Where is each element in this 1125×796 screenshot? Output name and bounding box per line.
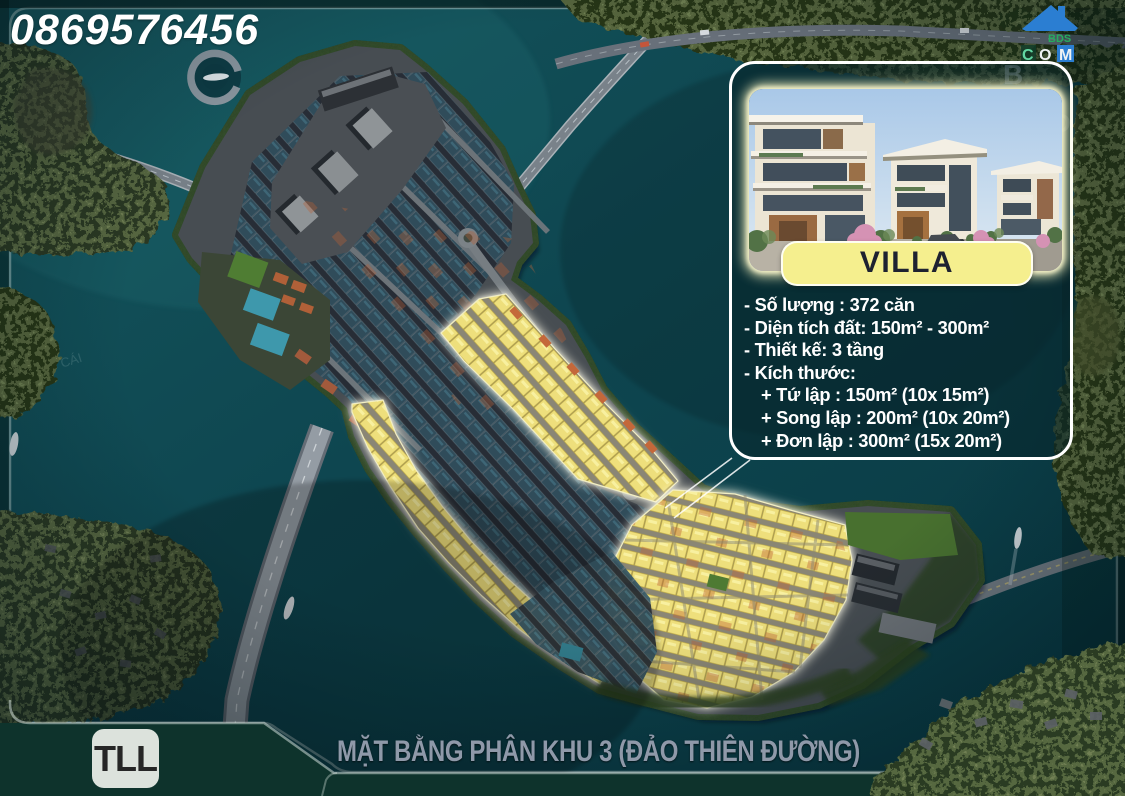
svg-text:M: M xyxy=(1059,47,1072,64)
svg-text:BDS: BDS xyxy=(1048,33,1071,45)
